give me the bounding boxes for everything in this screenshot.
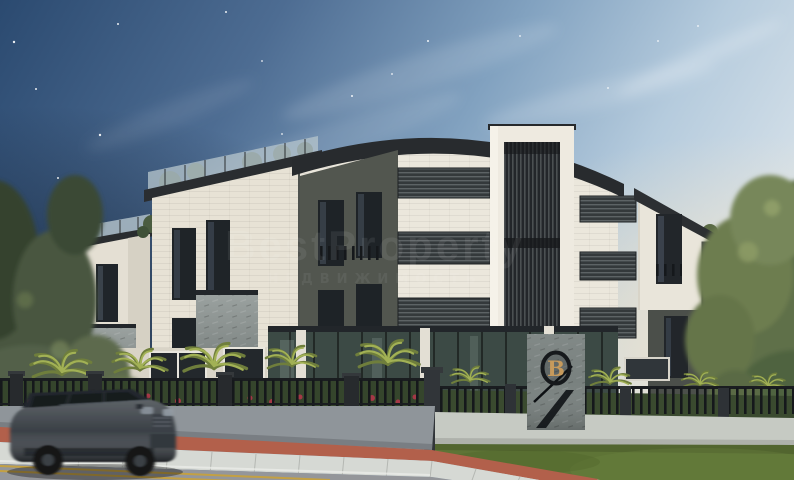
- gable-window: [656, 214, 682, 284]
- entrance-logo-panel: B: [527, 334, 585, 430]
- car-grille: [152, 414, 172, 432]
- louver-bands-right: [580, 196, 636, 338]
- car-shadow: [7, 464, 183, 480]
- right-ground-window: [625, 358, 669, 380]
- logo-letter: B: [547, 356, 565, 381]
- architectural-render-scene: B: [0, 0, 794, 480]
- watermark-line1: BestProperty: [225, 222, 525, 269]
- suv-car: [7, 389, 183, 480]
- car-mirror: [136, 404, 143, 409]
- watermark-line2: НЕДВИЖИМОСТЬ: [267, 272, 482, 287]
- render-canvas: B: [0, 0, 794, 480]
- watermark: BestProperty НЕДВИЖИМОСТЬ: [225, 222, 525, 287]
- metal-railing-far: [440, 388, 794, 414]
